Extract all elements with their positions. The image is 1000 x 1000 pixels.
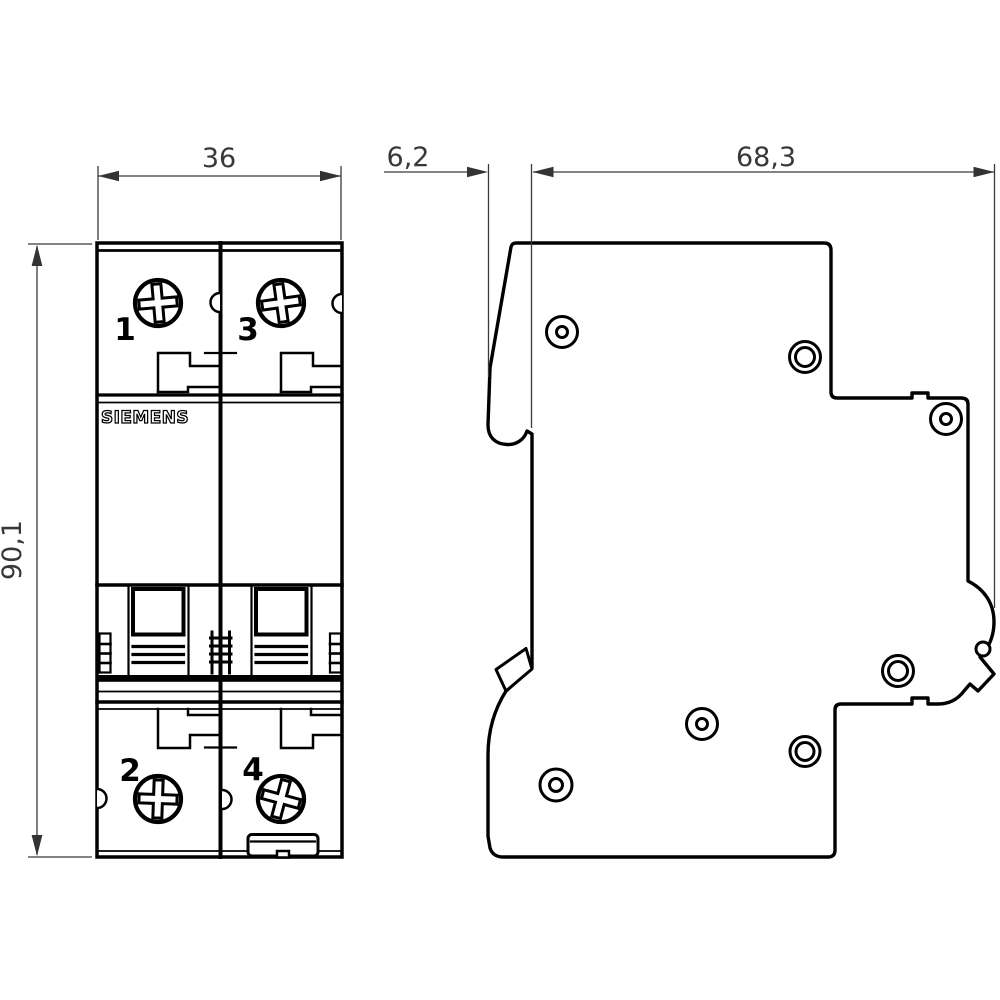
dimension-width: 36 [98,143,341,240]
rivet-small-lower-center [687,709,718,740]
terminal-label-4: 4 [242,752,264,788]
wire-notch-bottom-center [222,790,232,809]
rivet-small-bottom-left [540,769,572,801]
arrowhead-left-icon [533,167,554,177]
wire-notch-bottom-left [97,789,107,808]
siemens-logo: SIEMENS [101,408,189,428]
arrowhead-right-icon [974,167,995,177]
screw-terminal-1 [133,278,183,328]
dimension-width-value: 36 [202,143,236,174]
dimension-front-depth-value: 6,2 [387,142,430,173]
din-latch-pivot [976,642,990,656]
wire-notch-top-right [333,294,343,313]
dimension-height-value: 90,1 [0,520,28,580]
toggle-base-bar [98,675,341,682]
side-view [488,243,994,857]
arrowhead-up-icon [32,245,43,266]
rivet-large-bottom [790,737,820,767]
rivet-small-upper-back [931,404,962,435]
arrowhead-left-icon [98,171,119,181]
wire-notch-top-center [211,293,221,312]
technical-drawing-canvas: 1 3 SIEMENS [0,0,1000,1000]
toggle-lever-right [256,589,307,635]
front-view: 1 3 SIEMENS [97,243,342,858]
arrowhead-right-icon [320,171,341,181]
toggle-lever-left [133,589,184,635]
breaker-dimension-drawing: 1 3 SIEMENS [0,0,1000,1000]
dimension-front-depth: 6,2 [384,142,489,377]
terminal-label-1: 1 [114,312,136,348]
arrowhead-right-icon [467,167,488,177]
terminal-label-2: 2 [119,753,141,789]
rivet-large-lower-back [883,656,914,687]
dimension-height: 90,1 [0,244,92,857]
screw-terminal-2 [134,775,182,823]
terminal-label-3: 3 [237,312,259,348]
dimension-total-depth-value: 68,3 [736,142,796,173]
din-clip-slider [248,835,318,858]
rivet-small-top-left [547,317,578,348]
arrowhead-down-icon [32,835,43,856]
rivet-large-top-right [790,342,821,373]
